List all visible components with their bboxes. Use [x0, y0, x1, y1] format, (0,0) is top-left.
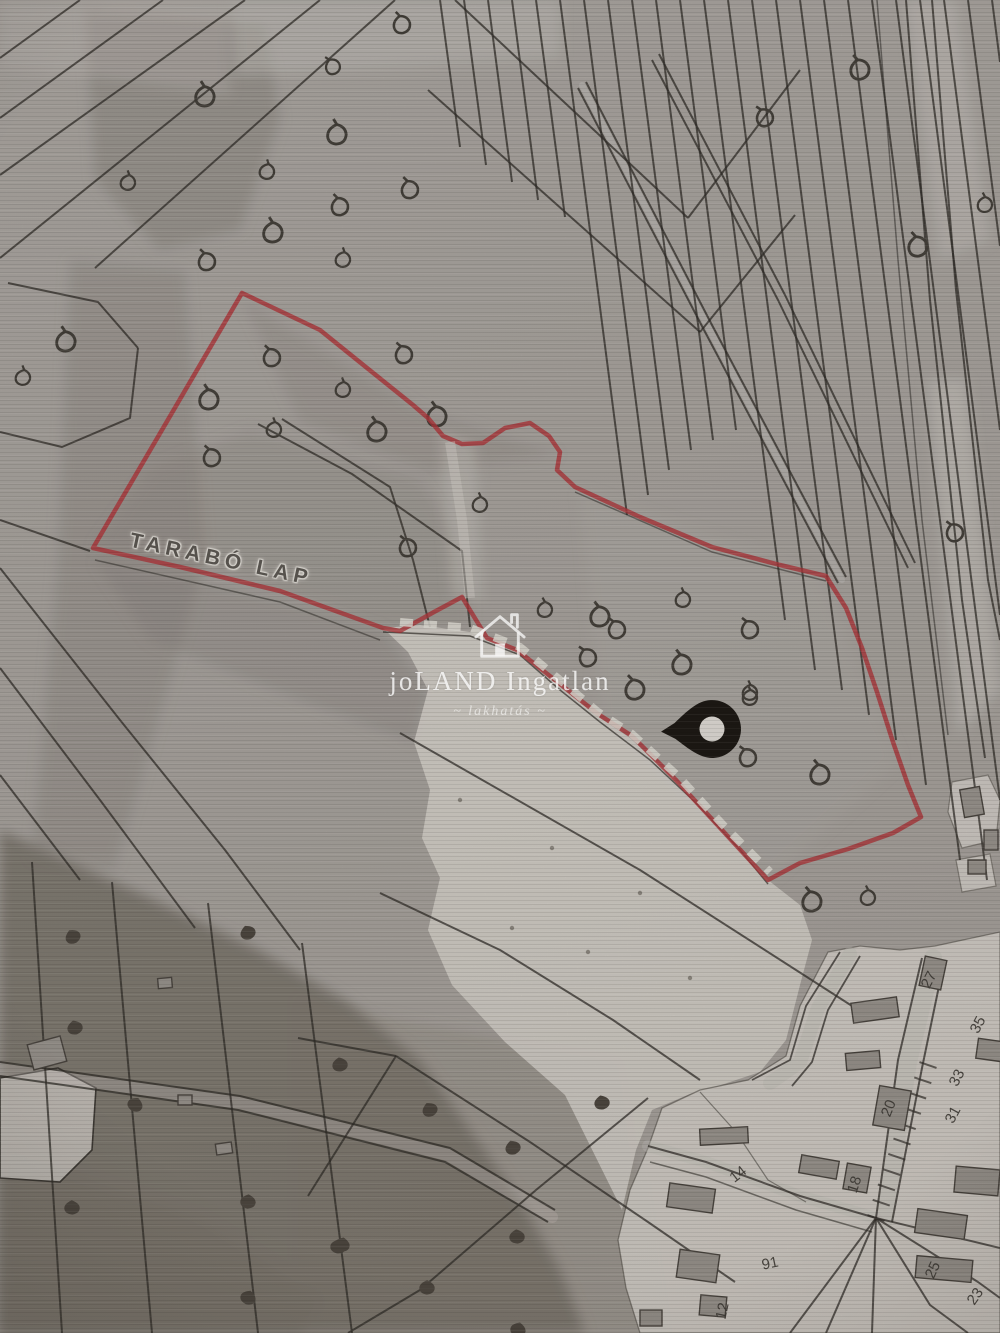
watermark: joLAND Ingatlan ~ lakhatás ~: [0, 608, 1000, 720]
watermark-brand: joLAND Ingatlan: [389, 666, 610, 696]
watermark-tagline: ~ lakhatás ~: [0, 704, 1000, 720]
cadastral-map-photo[interactable]: 2735333120141891251223 TARABÓ LAP joLAND…: [0, 0, 1000, 1333]
house-icon: [469, 608, 531, 662]
